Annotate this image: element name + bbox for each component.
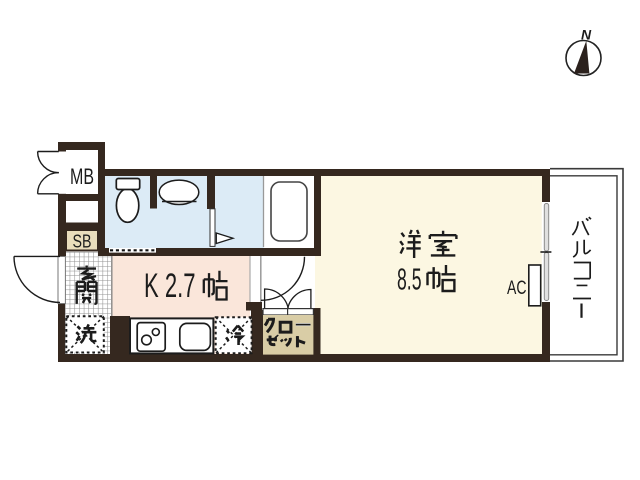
svg-text:8.5: 8.5 [397,262,422,297]
svg-text:MB: MB [70,164,94,189]
svg-text:SB: SB [73,232,92,252]
svg-text:K 2.7: K 2.7 [144,267,196,305]
svg-text:N: N [581,27,592,43]
svg-text:AC: AC [507,277,527,299]
